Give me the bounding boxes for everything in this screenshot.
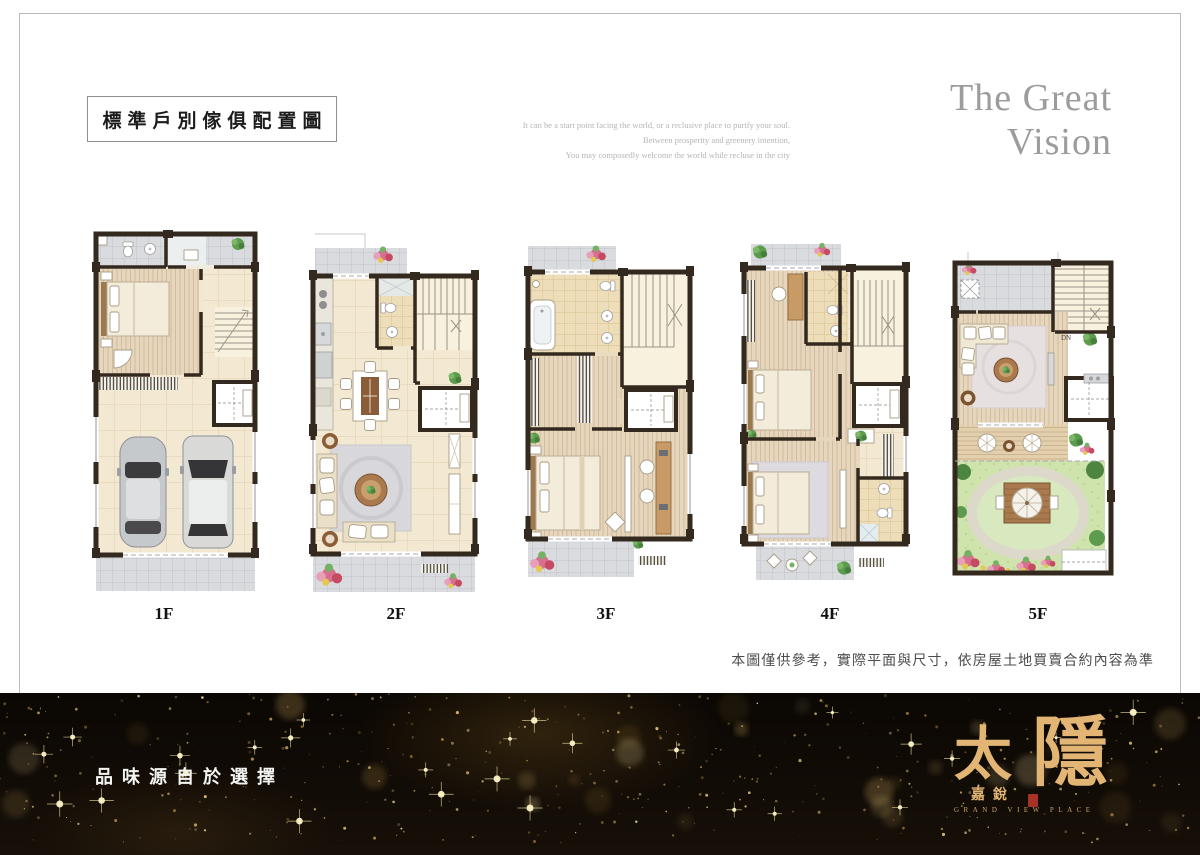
floor-label-3f: 3F <box>597 604 616 624</box>
floorplan-5f: DN <box>948 250 1135 600</box>
floorplan-2f <box>303 228 488 603</box>
brand-tagline: It can be a start point facing the world… <box>523 118 790 163</box>
tagline-line: Between prosperity and greenery intentio… <box>523 133 790 148</box>
floor-label-4f: 4F <box>821 604 840 624</box>
floorplan-3f <box>520 224 702 599</box>
brand-logo: 太 隱 嘉銳 GRAND VIEW PLACE <box>952 712 1162 852</box>
floor-label-2f: 2F <box>387 604 406 624</box>
tagline-line: It can be a start point facing the world… <box>523 118 790 133</box>
tagline-line: You may composedly welcome the world whi… <box>523 148 790 163</box>
stairs-dn-label: DN <box>1061 334 1071 342</box>
floorplan-1f <box>88 222 263 597</box>
disclaimer-text: 本圖僅供參考，實際平面與尺寸，依房屋土地買賣合約內容為準 <box>731 650 1154 670</box>
floorplan-4f-drawing <box>736 224 916 599</box>
brand-title-line2: Vision <box>950 120 1112 164</box>
page-title-box: 標準戶別傢俱配置圖 <box>87 96 337 142</box>
logo-char-tai: 太 <box>954 726 1012 784</box>
banner-slogan: 品味源自於選擇 <box>95 763 284 789</box>
floorplan-5f-drawing: DN <box>948 250 1135 600</box>
logo-subtitle: 嘉銳 <box>971 784 1015 804</box>
brand-title: The Great Vision <box>950 76 1112 164</box>
seal-icon <box>1028 794 1038 807</box>
brochure-page: 標準戶別傢俱配置圖 The Great Vision It can be a s… <box>0 0 1200 855</box>
floor-label-5f: 5F <box>1029 604 1048 624</box>
brand-title-line1: The Great <box>950 76 1112 120</box>
floorplan-2f-drawing <box>303 228 488 603</box>
logo-char-yin: 隱 <box>1032 716 1108 792</box>
page-title: 標準戶別傢俱配置圖 <box>102 106 327 133</box>
floor-label-1f: 1F <box>155 604 174 624</box>
floorplan-3f-drawing <box>520 224 702 599</box>
logo-english-name: GRAND VIEW PLACE <box>954 806 1095 814</box>
floorplan-1f-drawing <box>88 222 263 597</box>
floorplan-4f <box>736 224 916 599</box>
